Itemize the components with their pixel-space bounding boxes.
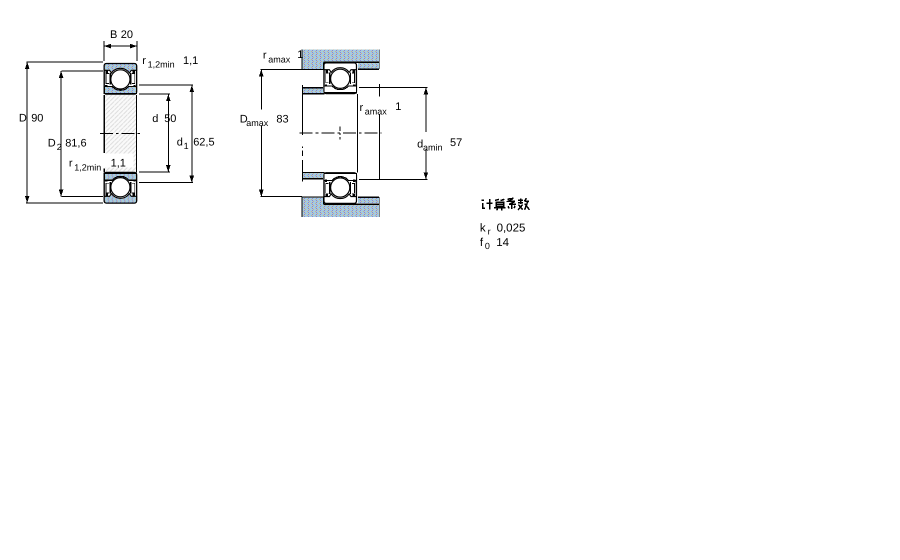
svg-text:r: r	[360, 102, 364, 114]
svg-text:1,2min: 1,2min	[74, 162, 101, 172]
svg-text:D: D	[48, 138, 56, 150]
svg-text:14: 14	[496, 237, 509, 249]
svg-text:amax: amax	[268, 55, 291, 65]
svg-text:20: 20	[121, 29, 133, 41]
svg-text:2: 2	[57, 142, 62, 152]
svg-text:1: 1	[184, 141, 189, 151]
svg-text:1: 1	[395, 101, 401, 113]
svg-text:1,2min: 1,2min	[148, 60, 175, 70]
svg-text:50: 50	[164, 113, 176, 125]
svg-text:81,6: 81,6	[65, 138, 86, 150]
svg-text:62,5: 62,5	[193, 137, 214, 149]
svg-text:r: r	[263, 50, 267, 62]
svg-text:83: 83	[276, 114, 288, 126]
svg-text:1,1: 1,1	[111, 158, 126, 170]
svg-text:0: 0	[485, 241, 490, 251]
svg-text:1,1: 1,1	[183, 55, 198, 67]
svg-text:amin: amin	[423, 143, 443, 153]
svg-text:d: d	[177, 137, 183, 149]
svg-text:90: 90	[31, 112, 43, 124]
svg-text:k: k	[480, 222, 486, 234]
svg-text:1: 1	[297, 49, 303, 61]
svg-text:r: r	[69, 158, 73, 170]
svg-text:r: r	[142, 55, 146, 67]
svg-text:B: B	[110, 29, 117, 41]
svg-text:0,025: 0,025	[497, 222, 526, 234]
svg-text:57: 57	[450, 137, 462, 149]
svg-text:r: r	[488, 227, 491, 237]
svg-text:amax: amax	[246, 118, 269, 128]
svg-text:D: D	[19, 112, 27, 124]
svg-text:d: d	[152, 113, 158, 125]
svg-text:amax: amax	[365, 107, 388, 117]
